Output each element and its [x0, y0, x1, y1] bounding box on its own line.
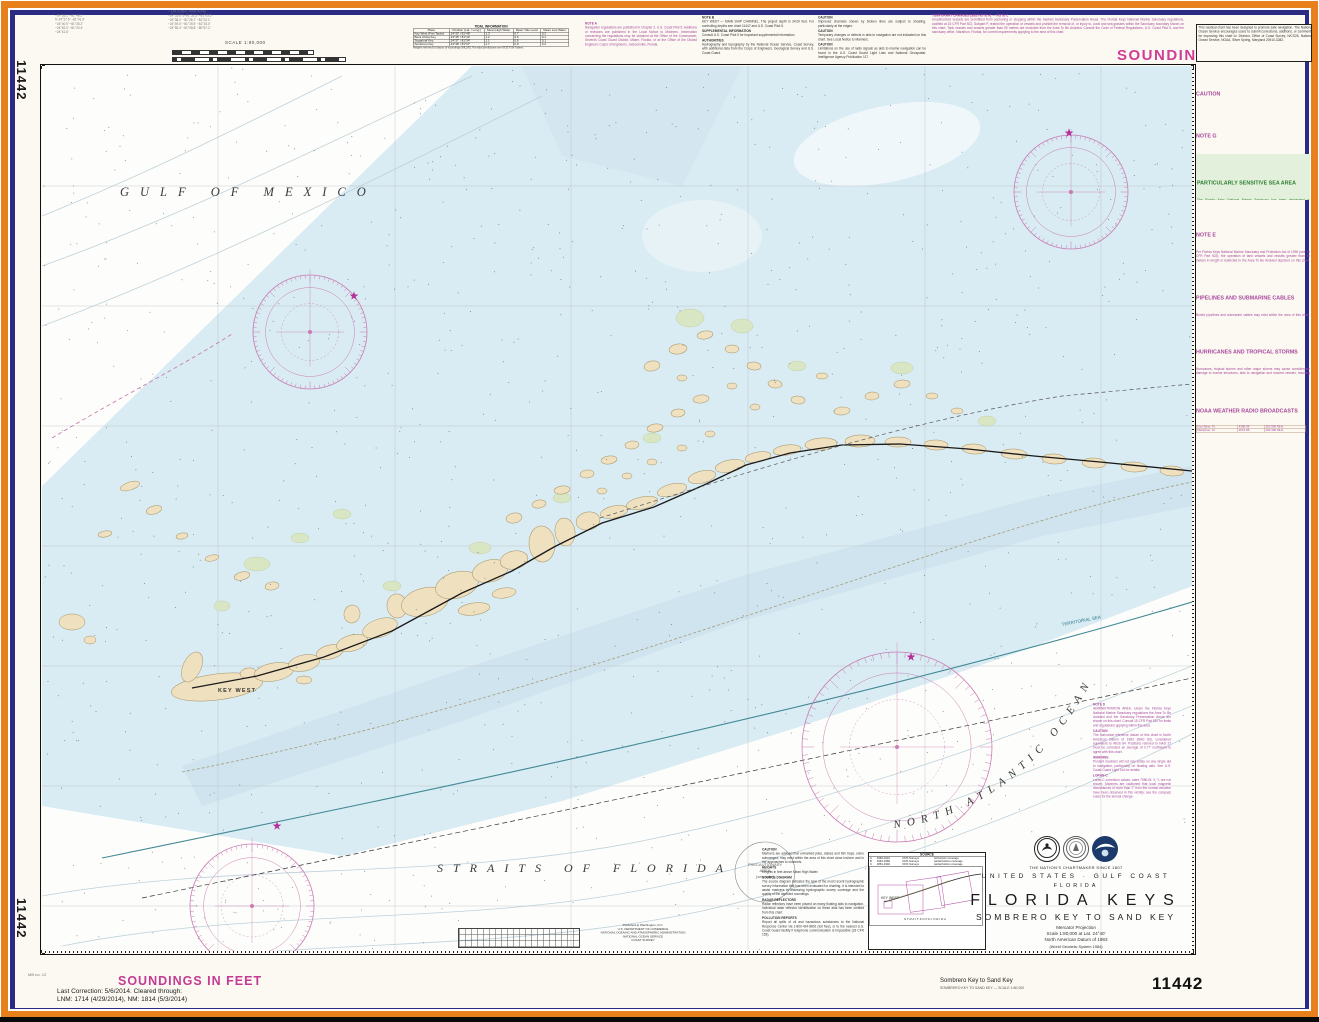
source-key-west-label: KEY WEST — [881, 896, 900, 900]
weather-station-table: Key West, FLKHB-39162.550 MHzMarathon, F… — [1196, 425, 1310, 433]
bottom-title-small: Sombrero Key to Sand Key — [940, 978, 1013, 984]
nos-seal-icon — [1063, 836, 1089, 862]
logarithmic-speed-scale — [458, 928, 580, 948]
top-note-column: NOTE ANavigation regulations are publish… — [585, 20, 697, 64]
gulf-of-mexico-label: GULF OF MEXICO — [120, 185, 377, 199]
top-note-column: NOTE BKEY WEST — MAIN SHIP CHANNEL. The … — [702, 14, 814, 64]
photo-bottom-edge — [0, 1017, 1319, 1022]
region-line: UNITED STATES · GULF COAST — [958, 873, 1192, 880]
tidal-footnote: Heights referred to datum of soundings (… — [413, 47, 569, 50]
chart-map-area: PRECAUTIONARYAREA(see note)GULF OF MEXIC… — [42, 66, 1192, 951]
key-west-label: KEY WEST — [218, 688, 256, 694]
scale-bar-2 — [172, 57, 346, 62]
top-note-column: CAUTIONImproved channels shown by broken… — [818, 14, 926, 64]
print-ref: MB no. 12 — [28, 972, 46, 977]
user-note-text: This nautical chart has been designed to… — [1197, 25, 1312, 44]
right-note-pipelines-and-submarine-cables: PIPELINES AND SUBMARINE CABLESBuried pip… — [1196, 270, 1310, 318]
scale-label: SCALE 1:80,000 — [225, 40, 266, 45]
correction-line-2: LNM: 1714 (4/29/2014), NM: 1814 (5/3/201… — [57, 996, 187, 1003]
correction-line-1: Last Correction: 5/6/2014. Cleared throu… — [57, 988, 182, 995]
right-note-particularly-sensitive-sea-area: PARTICULARLY SENSITIVE SEA AREAThe Flori… — [1196, 154, 1310, 199]
right-note-caution: CAUTIONThis chart has been prepared from… — [1196, 66, 1310, 101]
tidal-information-table: TIDAL INFORMATION PlacePosition (Lat. / … — [413, 25, 569, 63]
chart-subtitle: SOMBRERO KEY TO SAND KEY — [958, 912, 1192, 922]
user-note-box: This nautical chart has been designed to… — [1196, 24, 1312, 62]
state-line: FLORIDA — [958, 883, 1192, 889]
right-margin-notes: CAUTIONThis chart has been prepared from… — [1196, 66, 1310, 433]
right-note-note-g: NOTE GRegulations for Ocean Dumping Site… — [1196, 108, 1310, 147]
chart-number-bottom-right: 11442 — [1152, 974, 1203, 994]
right-note-hurricanes-and-tropical-storms: HURRICANES AND TROPICAL STORMSHurricanes… — [1196, 324, 1310, 376]
chartmaker-motto: THE NATION'S CHARTMAKER SINCE 1807 — [958, 865, 1192, 870]
wgs-line: (World Geodetic System 1984) — [958, 944, 1192, 949]
position-table-a: ~24°33.1' ~81°48.2'5~24°27.5' ~81°41.0'~… — [55, 14, 163, 64]
publisher-block: Published at Washington, D.C.U.S. DEPART… — [588, 924, 698, 948]
chart-photo: 11442 11442 ~24°33.1' ~81°48.2'5~24°27.5… — [0, 0, 1319, 1022]
right-note-noaa-weather-radio-broadcasts: NOAA WEATHER RADIO BROADCASTSThe NOAA We… — [1196, 383, 1310, 418]
chart-number-left-top: 11442 — [14, 60, 29, 100]
title-block: THE NATION'S CHARTMAKER SINCE 1807 UNITE… — [958, 834, 1192, 950]
svg-text:S T R A I T S O F F L O R: S T R A I T S O F F L O R I D A — [904, 917, 946, 921]
straits-of-florida-label: STRAITS OF FLORIDA — [437, 861, 733, 875]
map-svg: PRECAUTIONARYAREA(see note)GULF OF MEXIC… — [42, 66, 1192, 951]
soundings-in-feet-bottom: SOUNDINGS IN FEET — [118, 974, 262, 988]
commerce-eagle-seal-icon — [1034, 836, 1060, 862]
right-note-note-e: NOTE EPer Florida Keys National Marine S… — [1196, 207, 1310, 263]
source-notes-column: CAUTIONMariners are advised that unmarke… — [762, 845, 864, 947]
agency-seals — [958, 834, 1192, 864]
chart-number-left-bottom: 11442 — [14, 898, 29, 938]
noaa-logo-icon — [1092, 836, 1118, 862]
bottom-title-sub: SOMBRERO KEY TO SAND KEY — SCALE 1:80,00… — [940, 986, 1024, 990]
chart-title: FLORIDA KEYS — [958, 892, 1192, 910]
scale-bar-1 — [172, 50, 314, 55]
